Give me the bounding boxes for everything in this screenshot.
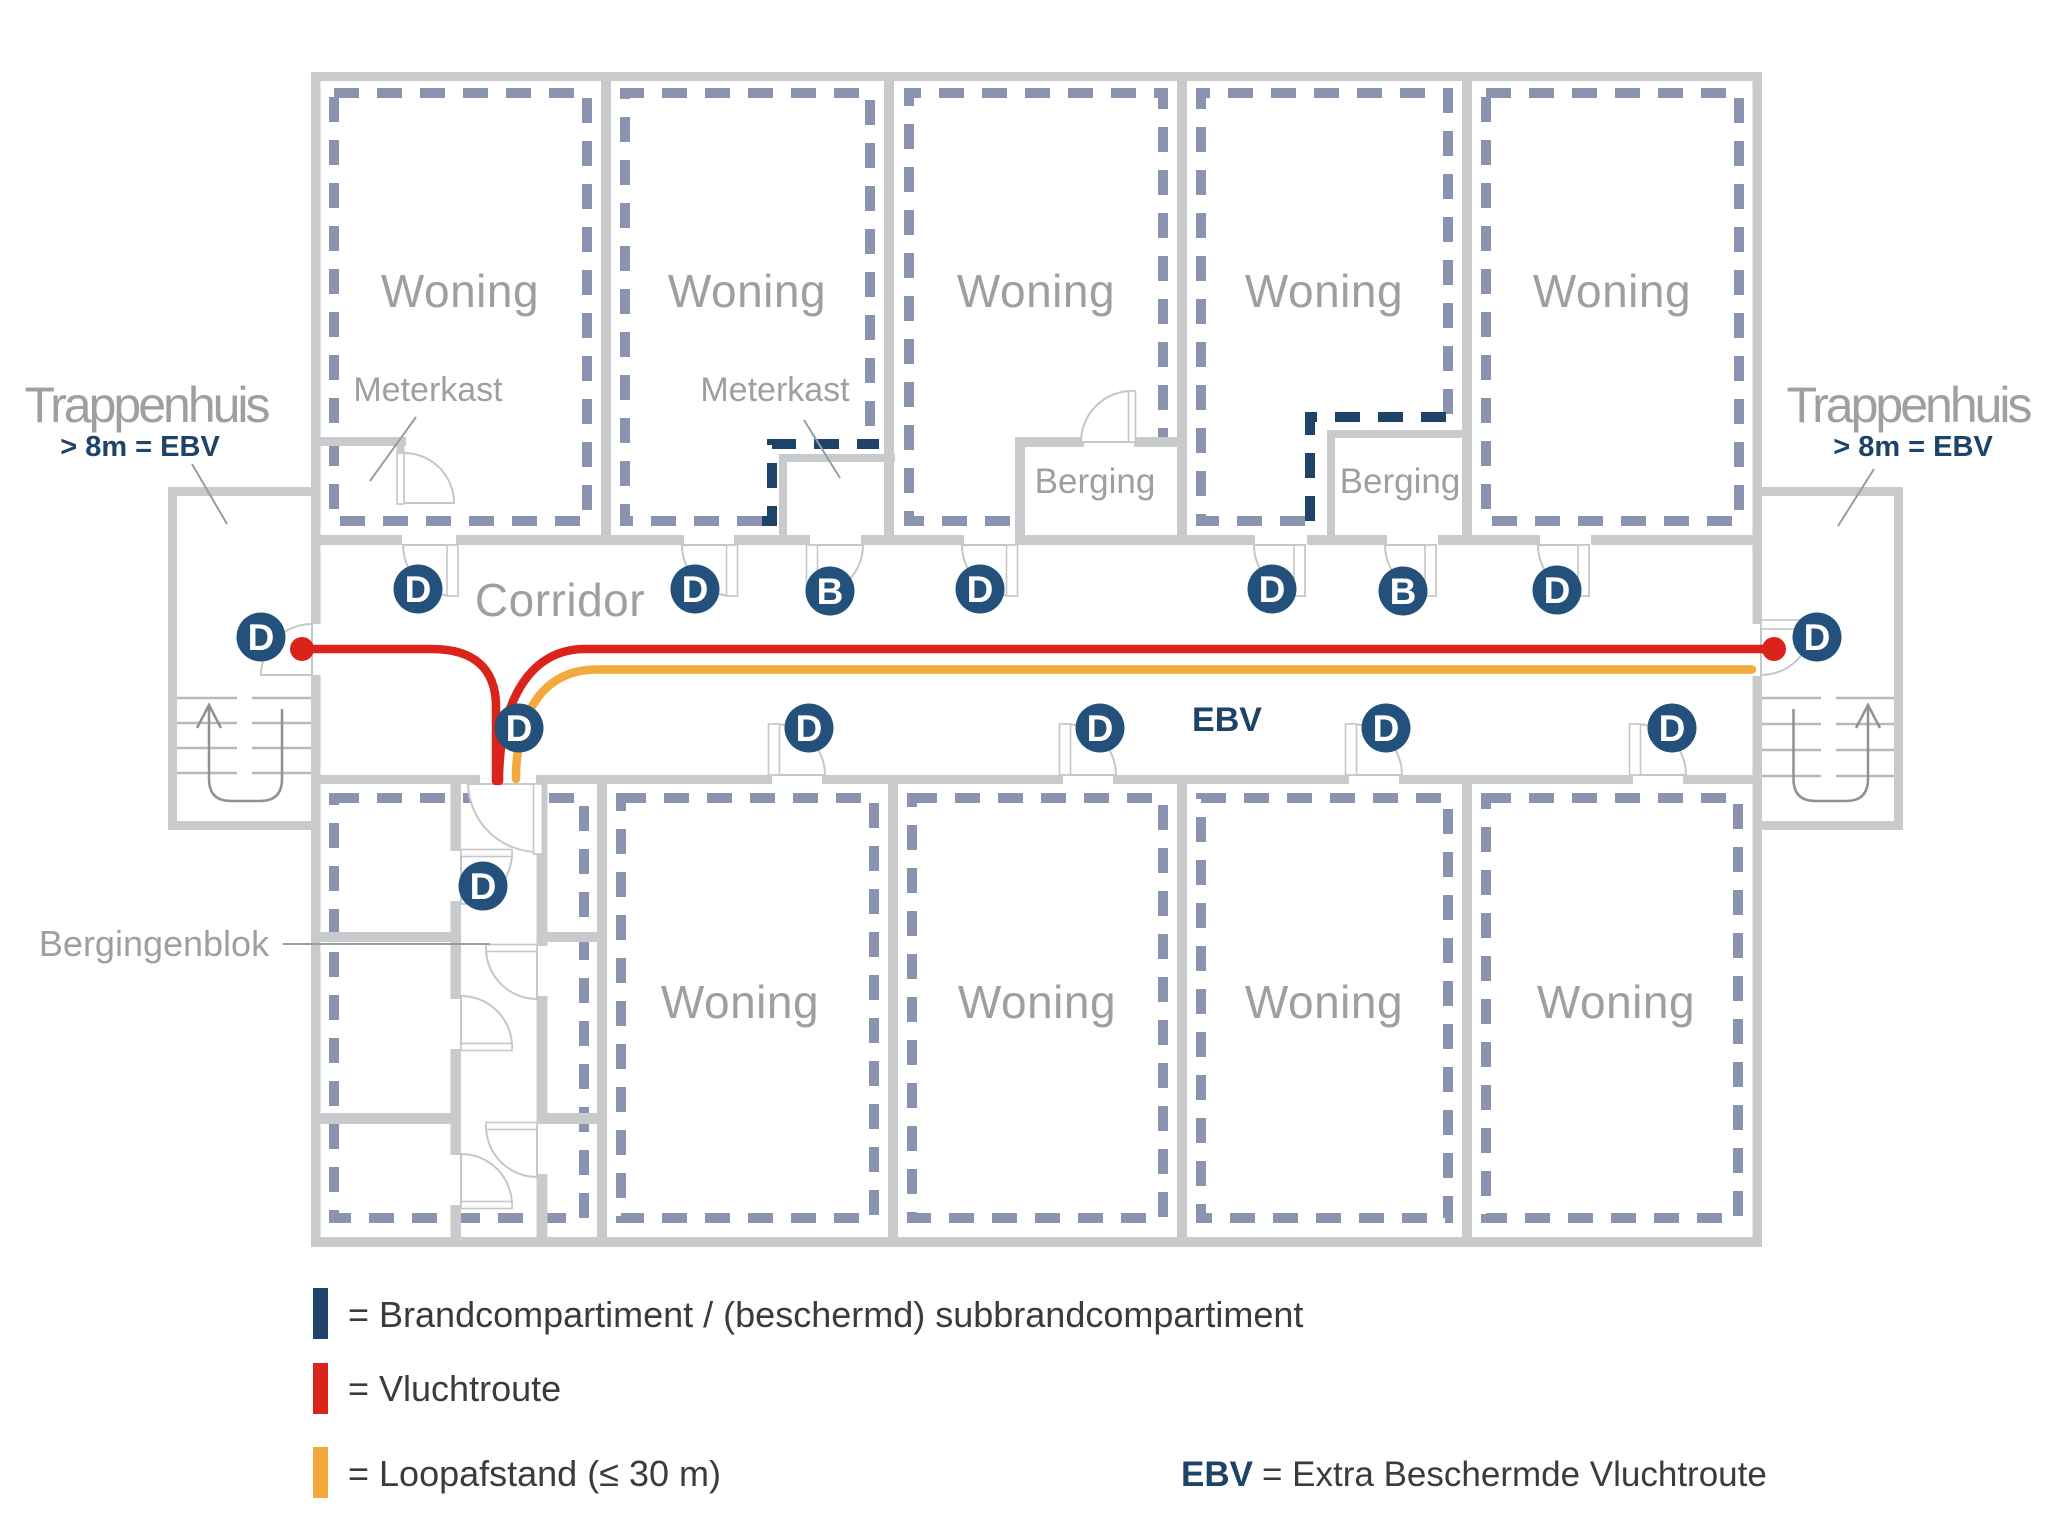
svg-text:Woning: Woning <box>381 265 539 317</box>
svg-text:= Extra Beschermde Vluchtroute: = Extra Beschermde Vluchtroute <box>1262 1455 1767 1494</box>
svg-text:> 8m = EBV: > 8m = EBV <box>60 431 220 463</box>
svg-text:EBV: EBV <box>1192 701 1262 739</box>
svg-text:D: D <box>682 569 709 610</box>
svg-text:D: D <box>506 708 533 749</box>
svg-text:Woning: Woning <box>958 976 1116 1028</box>
svg-text:Woning: Woning <box>1245 976 1403 1028</box>
svg-text:Woning: Woning <box>1537 976 1695 1028</box>
svg-text:D: D <box>1659 708 1686 749</box>
svg-text:Berging: Berging <box>1340 462 1461 501</box>
svg-text:EBV: EBV <box>1181 1455 1254 1494</box>
svg-text:Corridor: Corridor <box>475 574 645 626</box>
svg-text:Woning: Woning <box>957 265 1115 317</box>
svg-text:= Loopafstand (≤ 30 m): = Loopafstand (≤ 30 m) <box>348 1453 721 1494</box>
svg-text:Woning: Woning <box>1245 265 1403 317</box>
svg-text:Berging: Berging <box>1035 462 1156 501</box>
svg-text:D: D <box>470 866 497 907</box>
svg-text:Woning: Woning <box>668 265 826 317</box>
svg-text:= Brandcompartiment / (bescher: = Brandcompartiment / (beschermd) subbra… <box>348 1294 1303 1335</box>
svg-text:B: B <box>1390 571 1417 612</box>
svg-text:Woning: Woning <box>1533 265 1691 317</box>
svg-text:D: D <box>1804 617 1831 658</box>
svg-text:D: D <box>796 708 823 749</box>
svg-text:D: D <box>1087 708 1114 749</box>
svg-text:B: B <box>817 571 844 612</box>
svg-text:Woning: Woning <box>661 976 819 1028</box>
svg-text:D: D <box>1544 570 1571 611</box>
svg-text:= Vluchtroute: = Vluchtroute <box>348 1368 561 1409</box>
svg-text:Meterkast: Meterkast <box>700 371 850 409</box>
svg-text:D: D <box>1259 569 1286 610</box>
svg-text:Bergingenblok: Bergingenblok <box>39 923 270 964</box>
svg-text:D: D <box>967 569 994 610</box>
svg-text:Trappenhuis: Trappenhuis <box>24 377 269 433</box>
svg-text:Meterkast: Meterkast <box>353 371 503 409</box>
svg-text:Trappenhuis: Trappenhuis <box>1786 377 2031 433</box>
svg-text:> 8m = EBV: > 8m = EBV <box>1833 431 1993 463</box>
svg-text:D: D <box>405 569 432 610</box>
svg-text:D: D <box>248 617 275 658</box>
svg-text:D: D <box>1373 708 1400 749</box>
